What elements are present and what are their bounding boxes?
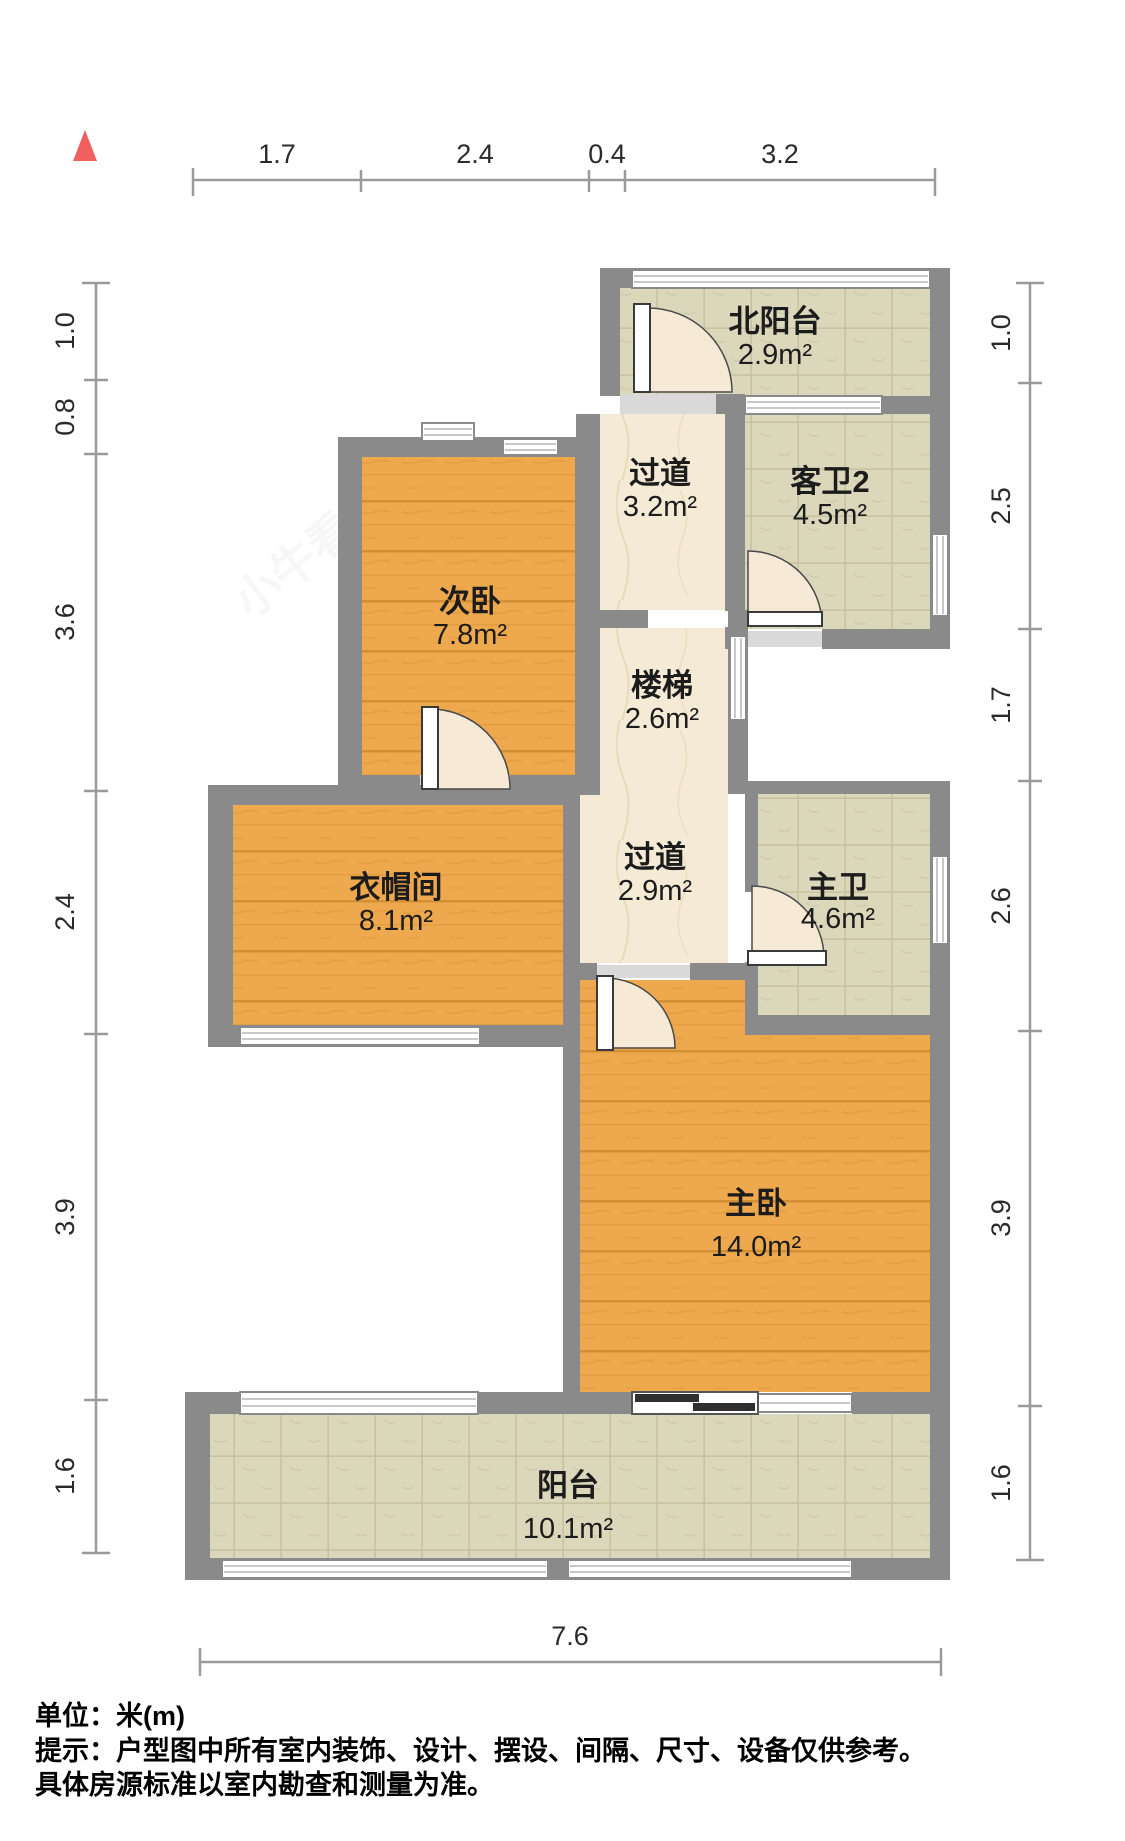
room-corridor-top: 过道 3.2m²: [623, 456, 697, 523]
dim-label: 3.9: [50, 1198, 80, 1236]
wall-segment: [185, 1392, 210, 1580]
window: [568, 1560, 852, 1578]
room-area: 2.9m²: [738, 339, 812, 371]
dim-label: 2.5: [986, 487, 1016, 525]
wall-segment: [563, 805, 580, 980]
dim-label: 3.2: [761, 139, 799, 169]
ruler-right: 1.0 2.5 1.7 2.6 3.9 1.6: [986, 283, 1044, 1560]
dim-label: 1.0: [986, 314, 1016, 352]
dim-label: 3.9: [986, 1199, 1016, 1237]
room-label: 过道: [629, 456, 691, 491]
dim-label: 1.0: [50, 312, 80, 350]
dim-label: 7.6: [551, 1621, 589, 1651]
wall-segment: [745, 781, 758, 892]
room-label: 阳台: [537, 1468, 599, 1503]
room-area: 8.1m²: [359, 905, 433, 937]
room-area: 7.8m²: [433, 619, 507, 651]
footer-note-line2: 具体房源标准以室内勘查和测量为准。: [35, 1769, 494, 1800]
dim-label: 1.6: [50, 1457, 80, 1495]
wall-segment: [210, 1392, 240, 1414]
threshold: [745, 631, 822, 647]
ruler-top: 1.7 2.4 0.4 3.2: [193, 139, 935, 196]
window: [730, 636, 746, 720]
wall-segment: [563, 1392, 632, 1414]
ruler-left: 1.0 0.8 3.6 2.4 3.9 1.6: [50, 283, 110, 1553]
dim-label: 0.4: [588, 139, 626, 169]
footer-note-line1: 提示：户型图中所有室内装饰、设计、摆设、间隔、尺寸、设备仅供参考。: [35, 1735, 926, 1766]
dim-label: 1.6: [986, 1464, 1016, 1502]
wall-segment: [745, 962, 758, 1015]
room-guest-bath2: 客卫2 4.5m²: [790, 464, 869, 531]
room-label: 次卧: [439, 584, 501, 619]
room-label: 衣帽间: [350, 870, 443, 905]
room-corridor-mid: 过道 2.9m²: [618, 840, 692, 907]
window: [758, 1394, 852, 1412]
wall-segment: [930, 1035, 950, 1392]
wall-opening: [648, 611, 728, 627]
wall-segment: [208, 785, 233, 1047]
dim-label: 1.7: [986, 686, 1016, 724]
room-label: 北阳台: [729, 304, 822, 339]
room-master-bath: 主卫 4.6m²: [801, 870, 875, 935]
dim-label: 2.4: [50, 893, 80, 931]
wall-segment: [745, 1015, 950, 1035]
window: [932, 856, 948, 944]
window: [932, 534, 948, 616]
window: [632, 270, 930, 288]
dim-label: 0.8: [50, 398, 80, 436]
room-label: 过道: [624, 840, 686, 875]
dim-label: 2.4: [456, 139, 494, 169]
room-area: 2.6m²: [625, 703, 699, 735]
wall-segment: [725, 396, 745, 629]
wall-segment: [576, 610, 648, 628]
wall-segment: [690, 963, 748, 980]
wall-segment: [600, 268, 620, 396]
north-arrow-icon: [73, 130, 97, 161]
room-area: 4.5m²: [793, 499, 867, 531]
wall-segment: [882, 396, 930, 414]
room-area: 10.1m²: [523, 1513, 614, 1545]
footer-unit-line: 单位：米(m): [35, 1700, 185, 1731]
wall-segment: [563, 980, 580, 1392]
sliding-door: [632, 1392, 758, 1414]
room-area: 3.2m²: [623, 491, 697, 523]
dim-label: 3.6: [50, 603, 80, 641]
footer: 单位：米(m) 提示：户型图中所有室内装饰、设计、摆设、间隔、尺寸、设备仅供参考…: [35, 1700, 926, 1800]
wall-segment: [745, 781, 950, 794]
room-cloakroom: 衣帽间 8.1m²: [350, 870, 443, 937]
wall-segment: [338, 437, 362, 795]
room-label: 楼梯: [631, 668, 693, 703]
window: [240, 1027, 480, 1045]
window: [745, 396, 882, 414]
wall-segment: [208, 785, 580, 805]
room-north-balcony: 北阳台 2.9m²: [729, 304, 822, 371]
dim-label: 2.6: [986, 887, 1016, 925]
window: [422, 423, 474, 441]
room-stairs: 楼梯 2.6m²: [625, 668, 699, 735]
wall-segment: [930, 1392, 950, 1580]
dim-label: 1.7: [258, 139, 296, 169]
room-area: 4.6m²: [801, 903, 875, 935]
wall-segment: [576, 414, 600, 628]
room-label: 主卫: [807, 870, 869, 905]
floorplan-canvas: 小牛看房 小牛看房 小牛看房: [0, 0, 1125, 1841]
threshold: [620, 394, 716, 414]
wall-segment: [478, 1392, 563, 1414]
window: [222, 1560, 548, 1578]
floorplan-page: 小牛看房 小牛看房 小牛看房: [0, 0, 1125, 1841]
wall-segment: [548, 1558, 568, 1580]
ruler-bottom: 7.6: [200, 1621, 941, 1676]
room-area: 2.9m²: [618, 875, 692, 907]
room-area: 14.0m²: [711, 1231, 802, 1263]
wall-segment: [822, 629, 950, 649]
window: [240, 1392, 478, 1414]
window: [503, 439, 558, 455]
room-second-bedroom: 次卧 7.8m²: [433, 584, 507, 651]
wall-segment: [563, 963, 597, 980]
room-label: 客卫2: [790, 464, 869, 499]
room-label: 主卧: [725, 1186, 787, 1221]
